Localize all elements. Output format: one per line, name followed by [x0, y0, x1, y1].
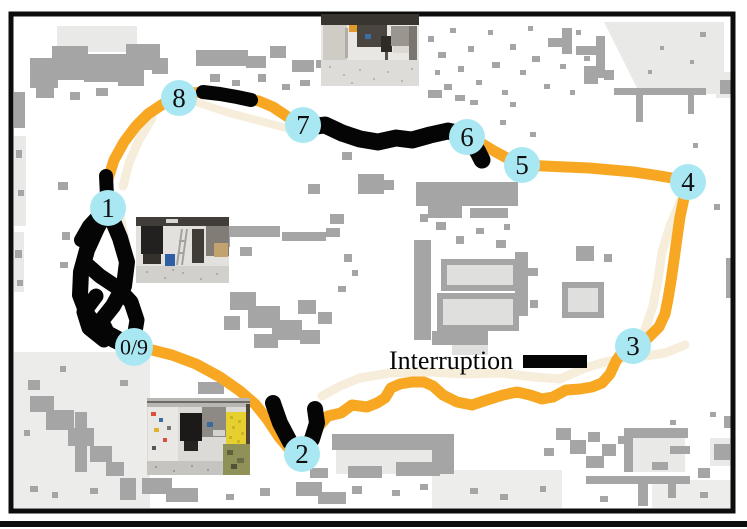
- waypoint-label-5: 5: [515, 150, 529, 180]
- inset-photo-top: [321, 14, 419, 86]
- bottom-rule: [0, 521, 747, 527]
- legend-label: Interruption: [389, 346, 513, 375]
- interruption-segment-0: [203, 92, 251, 100]
- waypoint-label-2: 2: [295, 439, 309, 469]
- figure-page: 0/912345678 Interruption: [0, 0, 747, 529]
- waypoint-label-3: 3: [626, 331, 640, 361]
- inset-photo-bottom: [147, 398, 250, 475]
- waypoint-label-1: 1: [101, 193, 115, 223]
- waypoint-label-0-9: 0/9: [120, 334, 148, 359]
- waypoint-label-8: 8: [172, 83, 186, 113]
- waypoint-label-4: 4: [681, 167, 695, 197]
- waypoint-label-6: 6: [460, 122, 474, 152]
- waypoint-label-7: 7: [296, 110, 310, 140]
- inset-photo-middle: [136, 217, 229, 283]
- legend-interruption-swatch: [523, 355, 587, 368]
- trajectory-map-figure: 0/912345678 Interruption: [0, 0, 747, 529]
